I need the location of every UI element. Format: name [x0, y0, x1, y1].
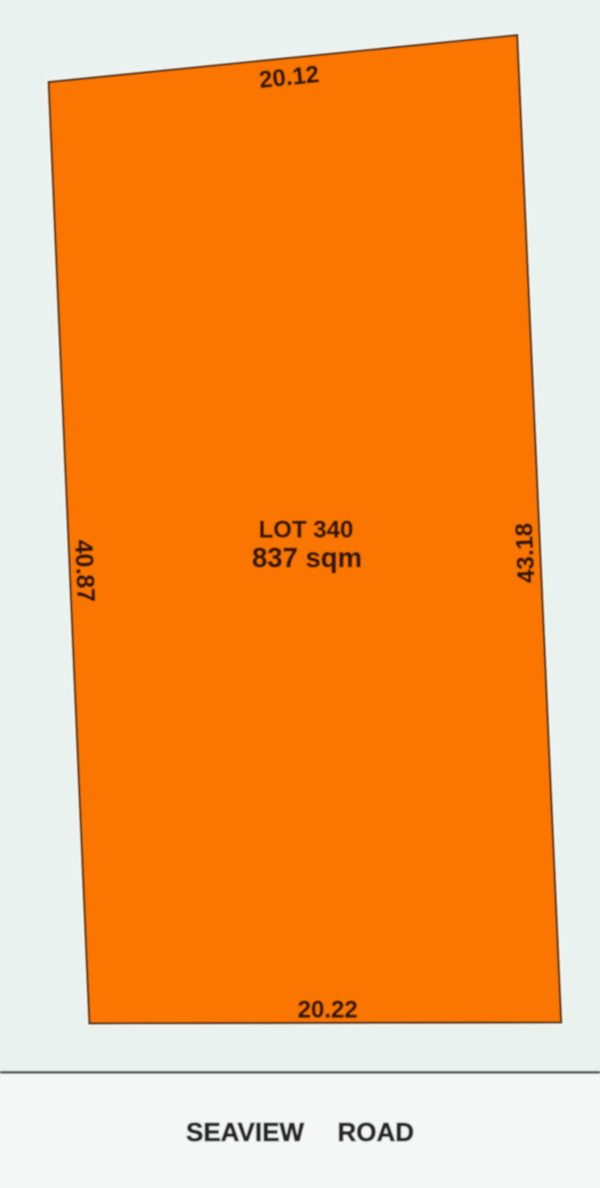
svg-text:LOT 340: LOT 340: [259, 517, 354, 544]
svg-text:40.87: 40.87: [69, 539, 100, 603]
svg-text:837 sqm: 837 sqm: [252, 542, 362, 573]
svg-text:43.18: 43.18: [511, 522, 541, 583]
svg-text:SEAVIEW: SEAVIEW: [186, 1117, 304, 1147]
svg-text:20.22: 20.22: [298, 997, 358, 1024]
svg-text:ROAD: ROAD: [338, 1117, 415, 1147]
